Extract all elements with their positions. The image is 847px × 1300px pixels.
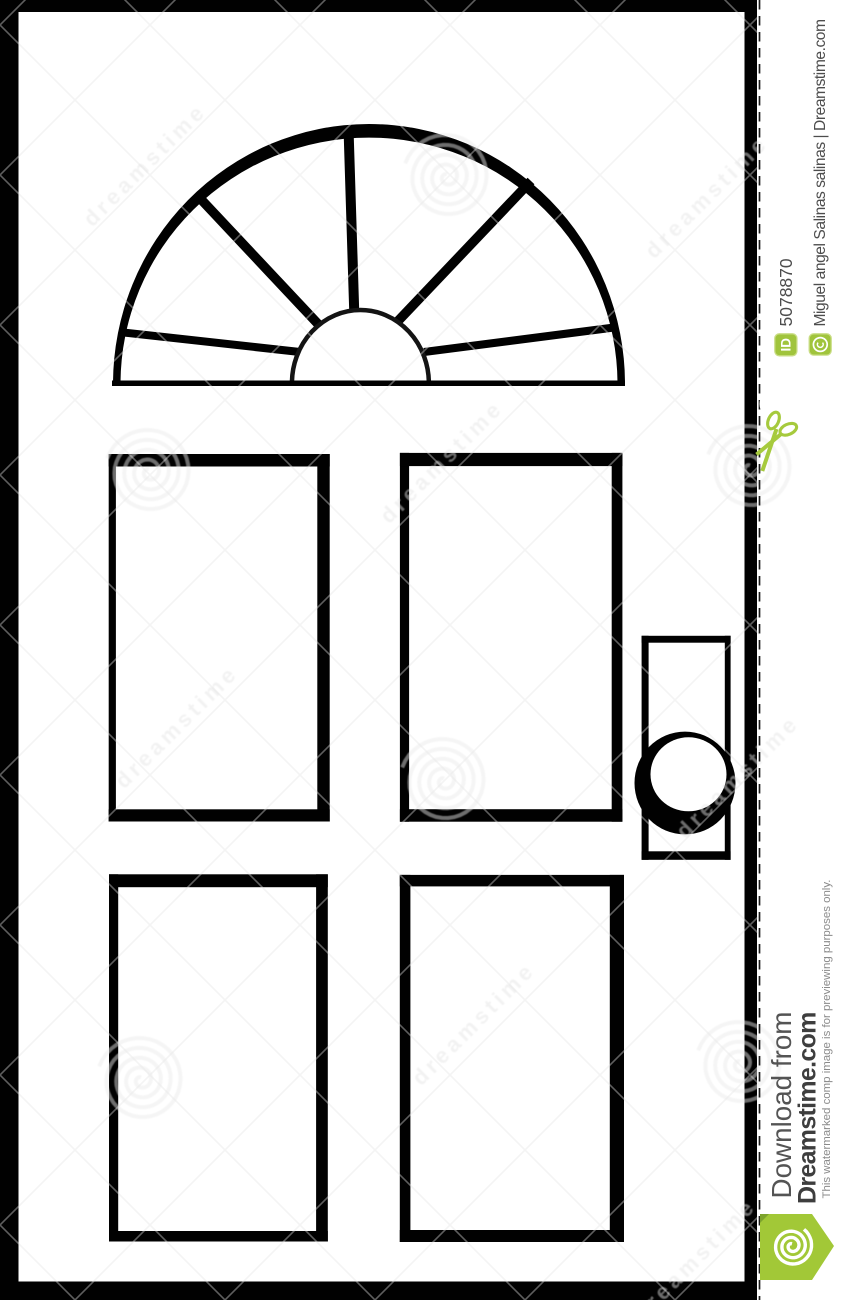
svg-text:Download from: Download from <box>766 1012 797 1199</box>
svg-text:ID: ID <box>779 338 794 352</box>
svg-text:This watermarked comp image is: This watermarked comp image is for previ… <box>821 880 833 1199</box>
svg-text:5078870: 5078870 <box>776 258 796 326</box>
svg-text:Miguel angel Salinas salinas |: Miguel angel Salinas salinas | Dreamstim… <box>812 19 829 326</box>
svg-text:Dreamstime.com: Dreamstime.com <box>794 1012 822 1204</box>
